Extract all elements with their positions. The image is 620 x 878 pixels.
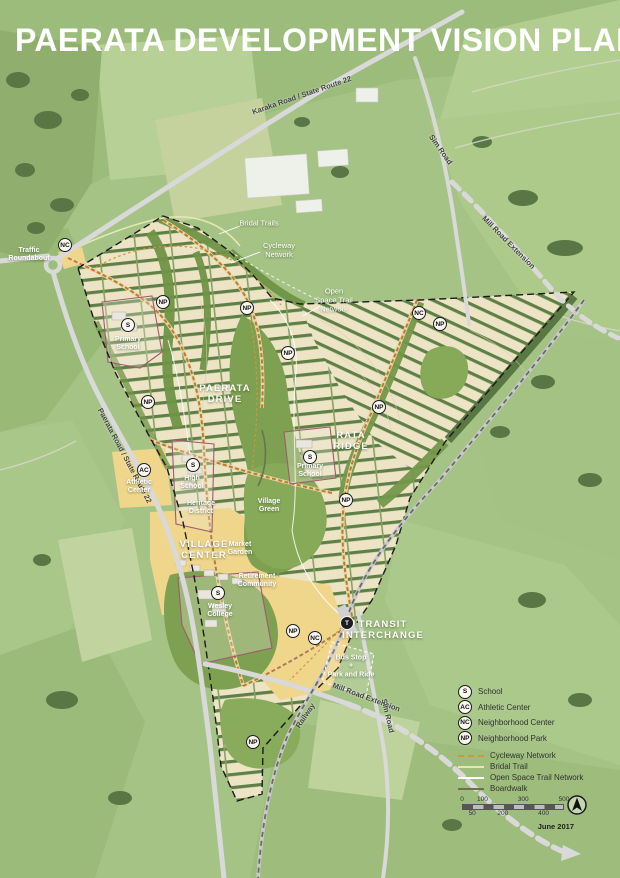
scale-tick: 300 [518,796,529,803]
page-title: PAERATA DEVELOPMENT VISION PLAN [15,22,620,59]
legend-item: NPNeighborhood Park [458,731,620,747]
legend-label: Neighborhood Park [478,734,547,743]
map-canvas: Karaka Road / State Route 22Sim RoadMill… [0,0,620,878]
scale-bar: 0100300500 50200400 [462,796,564,818]
neighborhood-center-badge: NC [458,716,472,730]
scale-tick: 400 [538,810,549,817]
legend-label: Neighborhood Center [478,718,555,727]
map-date: June 2017 [510,822,574,831]
scale-tick: 200 [497,810,508,817]
legend-label: Athletic Center [478,703,530,712]
north-arrow-icon [566,794,588,816]
athletic-center-badge: AC [458,700,472,714]
legend-label: School [478,687,502,696]
bridal-line-swatch [458,766,484,768]
legend-item: Open Space Trail Network [458,772,620,783]
scale-ticks-bottom: 50200400 [462,810,564,818]
neighborhood-park-badge: NP [458,731,472,745]
legend-line-items: Cycleway NetworkBridal TrailOpen Space T… [458,750,620,794]
legend-item: NCNeighborhood Center [458,715,620,731]
legend-label: Bridal Trail [490,762,528,771]
scale-tick: 100 [477,796,488,803]
openspace-line-swatch [458,777,484,779]
boardwalk-line-swatch [458,788,484,790]
cycleway-line-swatch [458,755,484,757]
scale-tick: 50 [469,810,476,817]
legend-item: ACAthletic Center [458,700,620,716]
legend-label: Boardwalk [490,784,527,793]
legend-item: Boardwalk [458,783,620,794]
scale-ticks-top: 0100300500 [462,796,564,804]
school-badge: S [458,685,472,699]
legend-item: Cycleway Network [458,750,620,761]
legend: SSchoolACAthletic CenterNCNeighborhood C… [458,684,620,844]
legend-item: SSchool [458,684,620,700]
scale-tick: 0 [460,796,464,803]
legend-label: Cycleway Network [490,751,556,760]
legend-label: Open Space Trail Network [490,773,583,782]
legend-item: Bridal Trail [458,761,620,772]
legend-badge-items: SSchoolACAthletic CenterNCNeighborhood C… [458,684,620,746]
traffic-roundabout [46,258,60,272]
